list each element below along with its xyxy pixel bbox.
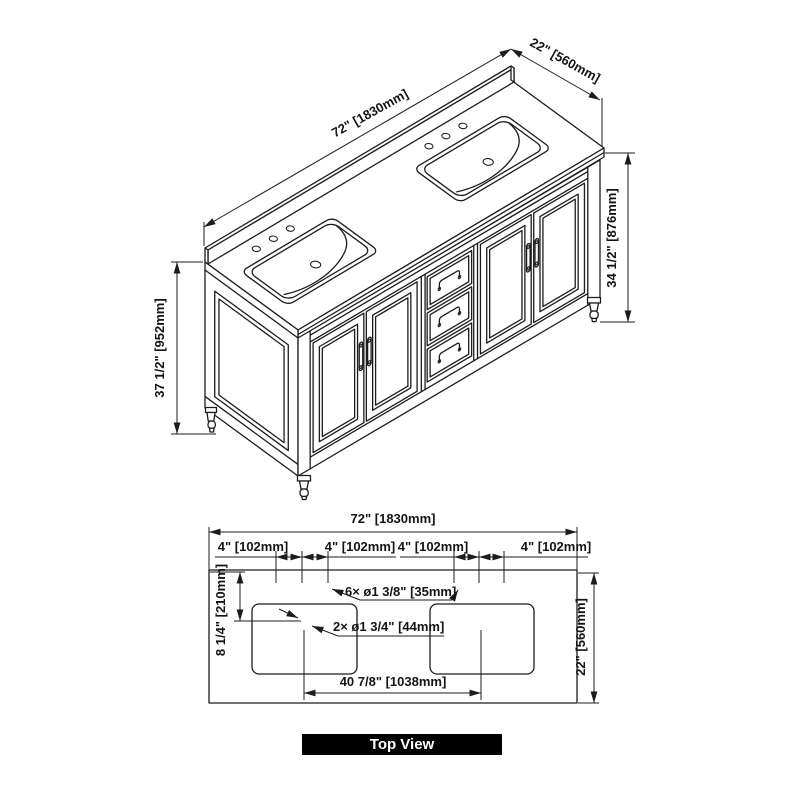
sink-cutout-right <box>430 604 534 674</box>
faucet-spacing-label-2: 4" [102mm] <box>325 539 395 554</box>
callout-faucet-holes-label: 6× ø1 3/8" [35mm] <box>345 584 456 599</box>
drain-hole-right-plan <box>475 616 487 628</box>
faucet-spacing-label-3: 4" [102mm] <box>398 539 468 554</box>
technical-drawing-page: 72" [1830mm] 22" [560mm] 34 1/2" [876mm]… <box>0 0 800 800</box>
callout-drain-holes-label: 2× ø1 3/4" [44mm] <box>333 619 444 634</box>
callout-faucet-holes: 6× ø1 3/8" [35mm] <box>332 584 458 600</box>
foot-back-left <box>206 408 217 433</box>
vanity-dimension-drawing: 72" [1830mm] 22" [560mm] 34 1/2" [876mm]… <box>0 0 800 800</box>
foot-front-right <box>588 298 601 322</box>
dim-iso-height-countertop-label: 34 1/2" [876mm] <box>604 188 619 287</box>
dim-drain-setback-label: 8 1/4" [210mm] <box>213 564 228 656</box>
foot-front-left <box>298 476 311 500</box>
dim-drain-spacing-label: 40 7/8" [1038mm] <box>340 674 447 689</box>
view-title: Top View <box>302 734 502 755</box>
drain-hole-left-plan <box>298 616 310 628</box>
iso-view <box>205 66 604 500</box>
dim-plan-depth-label: 22" [560mm] <box>573 598 588 676</box>
dim-iso-height-countertop: 34 1/2" [876mm] <box>600 153 635 322</box>
dim-iso-height-overall-label: 37 1/2" [952mm] <box>152 298 167 397</box>
faucet-spacing-label-1: 4" [102mm] <box>218 539 288 554</box>
dim-iso-depth-label: 22" [560mm] <box>528 35 603 86</box>
faucet-spacing-label-4: 4" [102mm] <box>521 539 591 554</box>
dim-plan-width-label: 72" [1830mm] <box>351 511 436 526</box>
dim-iso-width-label: 72" [1830mm] <box>329 86 411 140</box>
view-title-label: Top View <box>370 736 435 753</box>
